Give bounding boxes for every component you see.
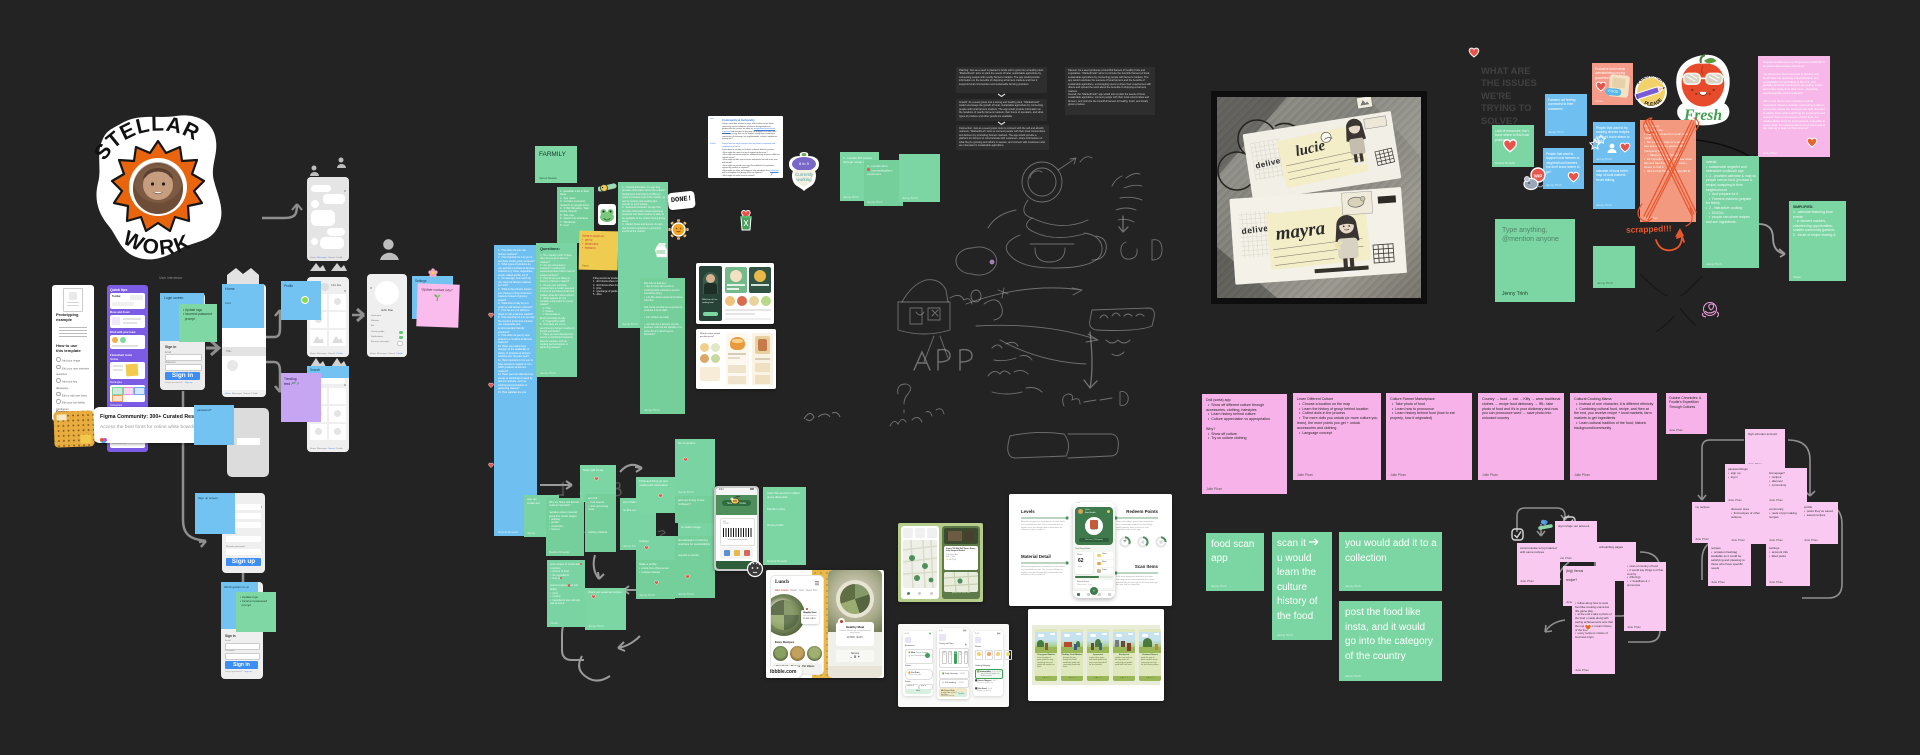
svg-text:8 to 9: 8 to 9: [799, 161, 810, 166]
svg-text:working: working: [796, 177, 812, 182]
svg-text:WIP: WIP: [1534, 174, 1543, 179]
